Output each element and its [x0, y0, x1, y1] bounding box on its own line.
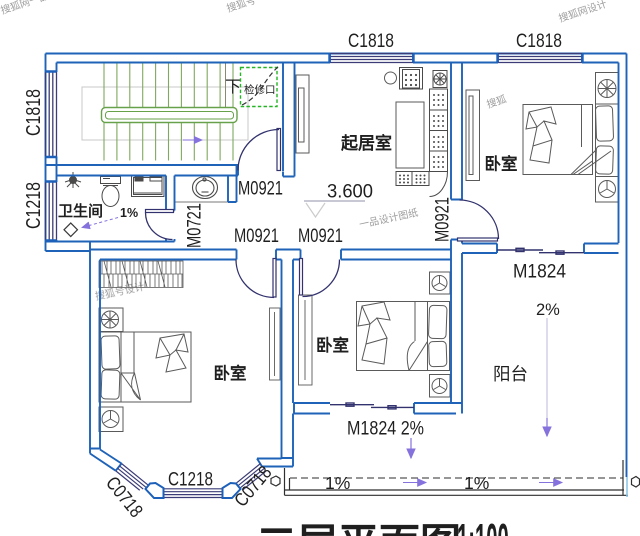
svg-text:C1818: C1818: [23, 89, 45, 136]
svg-text:卧室: 卧室: [316, 335, 349, 355]
svg-text:1%: 1%: [464, 473, 489, 493]
svg-text:卧室: 卧室: [214, 363, 247, 383]
svg-text:C1218: C1218: [23, 182, 45, 229]
svg-text:M0921: M0921: [298, 226, 343, 247]
svg-text:起居室: 起居室: [340, 133, 392, 153]
svg-text:M0921: M0921: [238, 179, 283, 200]
svg-text:C1818: C1818: [516, 31, 562, 52]
svg-text:C1218: C1218: [168, 470, 213, 491]
svg-text:卫生间: 卫生间: [58, 202, 103, 220]
svg-text:M1824: M1824: [513, 262, 566, 283]
svg-text:二层平面图: 二层平面图: [256, 521, 461, 536]
svg-text:M0721: M0721: [185, 203, 206, 248]
svg-text:检修口: 检修口: [244, 83, 276, 96]
svg-text:3.600: 3.600: [327, 182, 373, 203]
svg-text:卧室: 卧室: [485, 154, 518, 174]
svg-text:2%: 2%: [536, 301, 560, 319]
svg-text:1%: 1%: [120, 206, 138, 220]
svg-text:M1824 2%: M1824 2%: [347, 419, 424, 440]
svg-text:M0921: M0921: [234, 226, 279, 247]
svg-text:C1818: C1818: [348, 31, 394, 52]
svg-text:1%: 1%: [325, 473, 350, 493]
svg-text:1:100: 1:100: [457, 515, 509, 536]
svg-text:阳台: 阳台: [493, 364, 528, 384]
svg-text:下: 下: [225, 79, 241, 96]
svg-text:M0921: M0921: [433, 197, 454, 242]
